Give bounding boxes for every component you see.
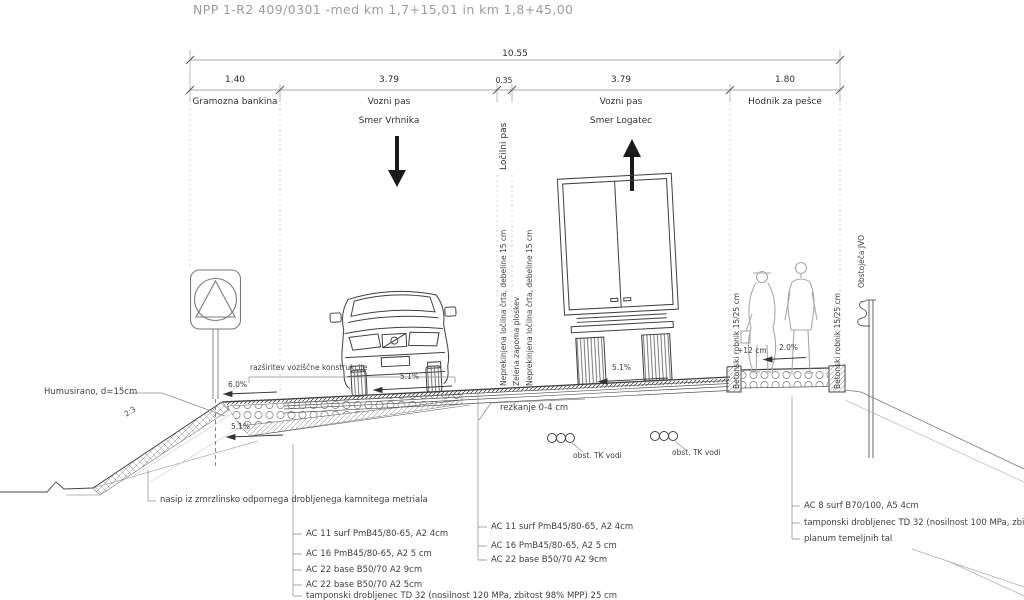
- slope-lane-left: 5.1%: [400, 373, 419, 381]
- guardrail-label: Obstoječa JVO: [858, 235, 866, 288]
- sign-post: [213, 329, 218, 466]
- zone-label-bankina: Gramozna bankina: [192, 98, 277, 107]
- lane-label-right: Vozni pas: [600, 98, 643, 107]
- widening-note: razširitev voziščne konstrukcije: [250, 364, 367, 372]
- marking-label-3: Neprekinjena ločilna črta, debeline 15 c…: [526, 230, 534, 386]
- pedestrian-figures: [741, 263, 817, 374]
- curb-label-left: Betonski robnik 15/25 cm: [733, 293, 741, 389]
- curb-height-label: +12 cm: [737, 347, 767, 355]
- pedestrian-left: [741, 272, 776, 373]
- zone-label-sidewalk: Hodnik za pešce: [748, 98, 822, 107]
- segment-dim-4: 3.79: [611, 76, 631, 85]
- lane-direction-left: Smer Vrhnika: [359, 117, 420, 126]
- total-dim-label: 10.55: [502, 50, 528, 59]
- humus-note: Humusirano, d=15cm: [44, 388, 137, 397]
- truck-figure: [557, 173, 682, 385]
- terrain-right: [845, 390, 1024, 596]
- layer-right-1: AC 8 surf B70/100, A5 4cm: [804, 502, 919, 511]
- drawing-sheet: NPP 1-R2 409/0301 -med km 1,7+15,01 in k…: [0, 0, 1024, 600]
- direction-arrow-up: [623, 139, 641, 191]
- slope-berm: 5.1%: [231, 423, 250, 431]
- segment-dim-5: 1.80: [775, 76, 795, 85]
- direction-arrow-down: [388, 136, 406, 187]
- segment-dim-2: 3.79: [379, 76, 399, 85]
- slope-sidewalk: 2.0%: [779, 344, 798, 352]
- tk-note-right: obst. TK vodi: [672, 449, 721, 457]
- marking-label-2: Zelena zaporna ploskev: [513, 297, 521, 386]
- curb-label-right: Betonski robnik 15/25 cm: [834, 293, 842, 389]
- layer-mid-1: AC 11 surf PmB45/80-65, A2 4cm: [491, 523, 633, 532]
- segment-dim-1: 1.40: [225, 76, 245, 85]
- marking-label-1: Neprekinjena ločilna črta, debeline 15 c…: [500, 230, 508, 386]
- car-figure: [329, 288, 460, 397]
- lane-direction-right: Smer Logatec: [590, 117, 652, 126]
- layer-right-3: planum temeljnih tal: [804, 535, 892, 544]
- tk-conduits: [548, 432, 678, 443]
- milling-note: rezkanje 0-4 cm: [500, 404, 568, 413]
- layer-left-5: tamponski drobljenec TD 32 (nosilnost 12…: [306, 592, 617, 600]
- road-sign: [191, 270, 241, 329]
- layer-left-3: AC 22 base B50/70 A2 9cm: [306, 566, 422, 575]
- layer-right-2: tamponski drobljenec TD 32 (nosilnost 10…: [804, 519, 1024, 528]
- segment-dim-3: 0.35: [496, 77, 513, 85]
- zone-label-median: Ločilni pas: [500, 123, 509, 170]
- sidewalk-curbs: [727, 365, 845, 392]
- layer-mid-2: AC 16 PmB45/80-65, A2 5 cm: [491, 542, 617, 551]
- fill-note: nasip iz zmrzlinsko odpornega drobljeneg…: [160, 496, 428, 505]
- embankment: [0, 402, 245, 495]
- lane-label-left: Vozni pas: [368, 98, 411, 107]
- tk-note-left: obst. TK vodi: [573, 452, 622, 460]
- pedestrian-right: [785, 263, 817, 374]
- layer-mid-3: AC 22 base B50/70 A2 9cm: [491, 556, 607, 565]
- drawing-title: NPP 1-R2 409/0301 -med km 1,7+15,01 in k…: [193, 4, 573, 17]
- slope-lane-right: 5.1%: [612, 364, 631, 372]
- slope-bankina: 6.0%: [228, 381, 247, 389]
- layer-left-4: AC 22 base B50/70 A2 5cm: [306, 581, 422, 590]
- guardrail-jvo: [858, 300, 876, 458]
- layer-left-2: AC 16 PmB45/80-65, A2 5 cm: [306, 550, 432, 559]
- layer-left-1: AC 11 surf PmB45/80-65, A2 4cm: [306, 530, 448, 539]
